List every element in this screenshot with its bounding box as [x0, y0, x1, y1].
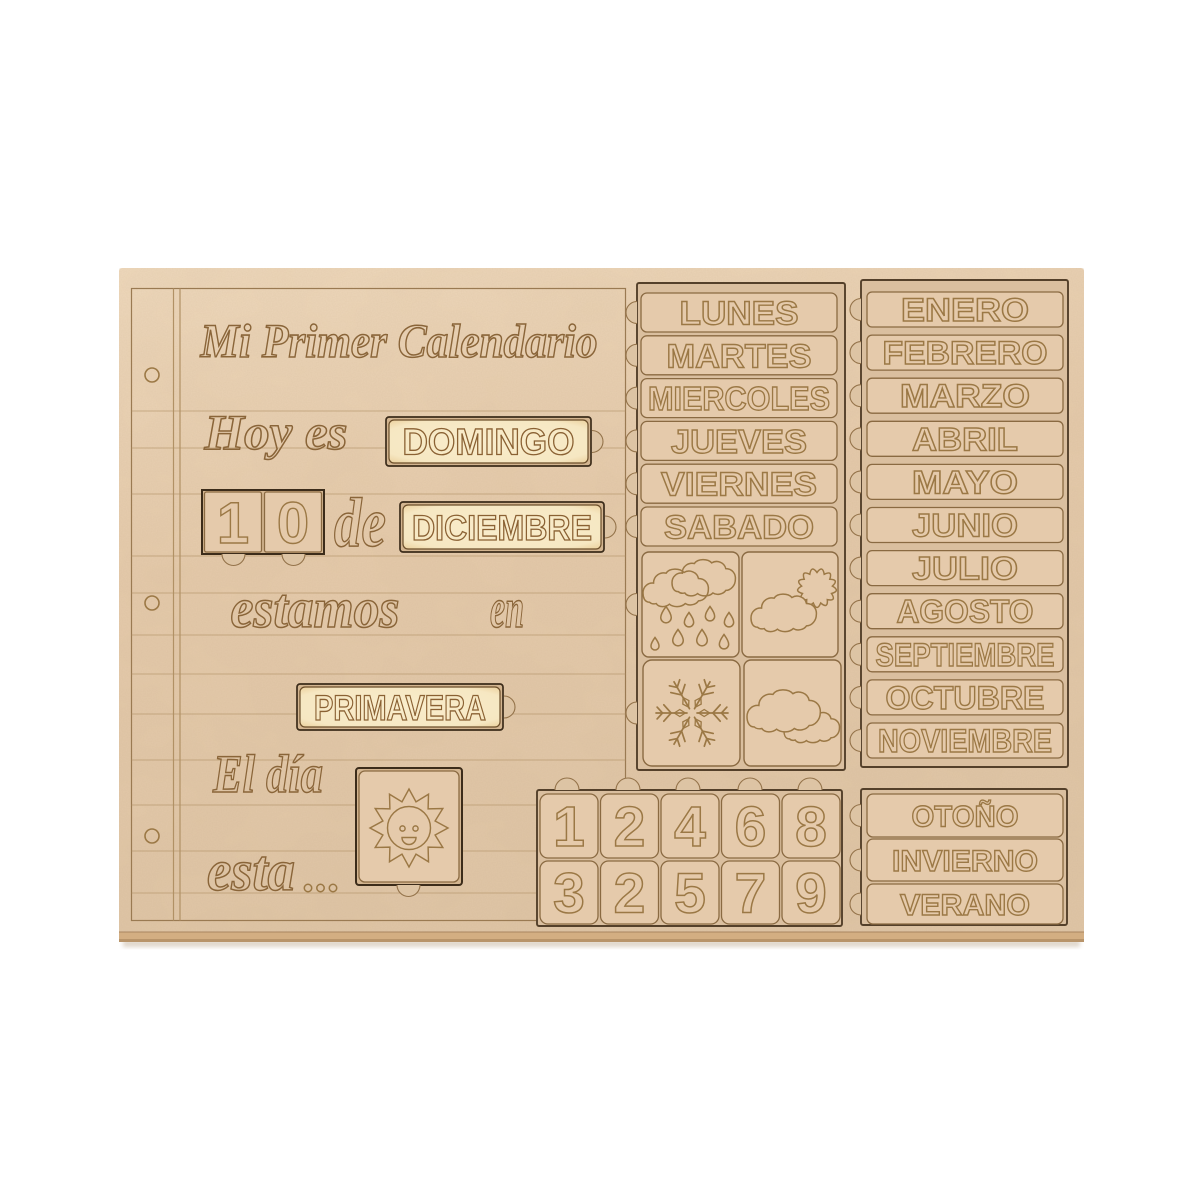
svg-text:MIERCOLES: MIERCOLES [648, 380, 830, 417]
svg-text:2: 2 [614, 795, 646, 859]
svg-text:SEPTIEMBRE: SEPTIEMBRE [876, 637, 1055, 673]
svg-text:JULIO: JULIO [912, 551, 1018, 587]
svg-text:FEBRERO: FEBRERO [883, 335, 1048, 371]
svg-text:Mi Primer Calendario: Mi Primer Calendario [200, 315, 598, 368]
svg-text:0: 0 [277, 491, 309, 556]
svg-text:DICIEMBRE: DICIEMBRE [412, 509, 592, 548]
svg-text:5: 5 [674, 862, 706, 926]
svg-text:LUNES: LUNES [680, 295, 799, 332]
svg-text:AGOSTO: AGOSTO [897, 594, 1034, 630]
svg-text:MARZO: MARZO [900, 378, 1030, 414]
svg-text:VIERNES: VIERNES [661, 466, 817, 503]
svg-text:El día: El día [212, 744, 323, 804]
svg-text:esta: esta [207, 838, 295, 903]
svg-text:7: 7 [735, 862, 767, 926]
svg-text:MARTES: MARTES [667, 337, 812, 374]
svg-text:2: 2 [614, 862, 646, 926]
svg-text:estamos: estamos [231, 578, 400, 640]
svg-text:ABRIL: ABRIL [912, 421, 1018, 457]
svg-text:VERANO: VERANO [900, 889, 1030, 922]
svg-text:MAYO: MAYO [912, 464, 1018, 500]
svg-text:3: 3 [553, 862, 585, 926]
svg-text:ENERO: ENERO [901, 292, 1029, 328]
svg-text:DOMINGO: DOMINGO [403, 422, 575, 463]
svg-text:Hoy es: Hoy es [203, 404, 347, 460]
svg-text:PRIMAVERA: PRIMAVERA [314, 689, 486, 728]
svg-text:4: 4 [674, 795, 706, 859]
svg-text:de: de [334, 485, 386, 562]
svg-text:6: 6 [735, 795, 767, 859]
svg-text:9: 9 [795, 862, 827, 926]
svg-text:OTOÑO: OTOÑO [912, 800, 1019, 834]
svg-text:NOVIEMBRE: NOVIEMBRE [878, 723, 1052, 759]
svg-text:en: en [490, 578, 524, 640]
svg-text:JUNIO: JUNIO [912, 508, 1018, 544]
svg-text:1: 1 [217, 491, 249, 556]
svg-text:8: 8 [795, 795, 827, 859]
svg-text:1: 1 [553, 795, 585, 859]
svg-text:JUEVES: JUEVES [671, 423, 807, 460]
svg-text:OCTUBRE: OCTUBRE [886, 680, 1045, 716]
svg-text:SABADO: SABADO [664, 509, 814, 546]
svg-text:INVIERNO: INVIERNO [892, 845, 1038, 878]
